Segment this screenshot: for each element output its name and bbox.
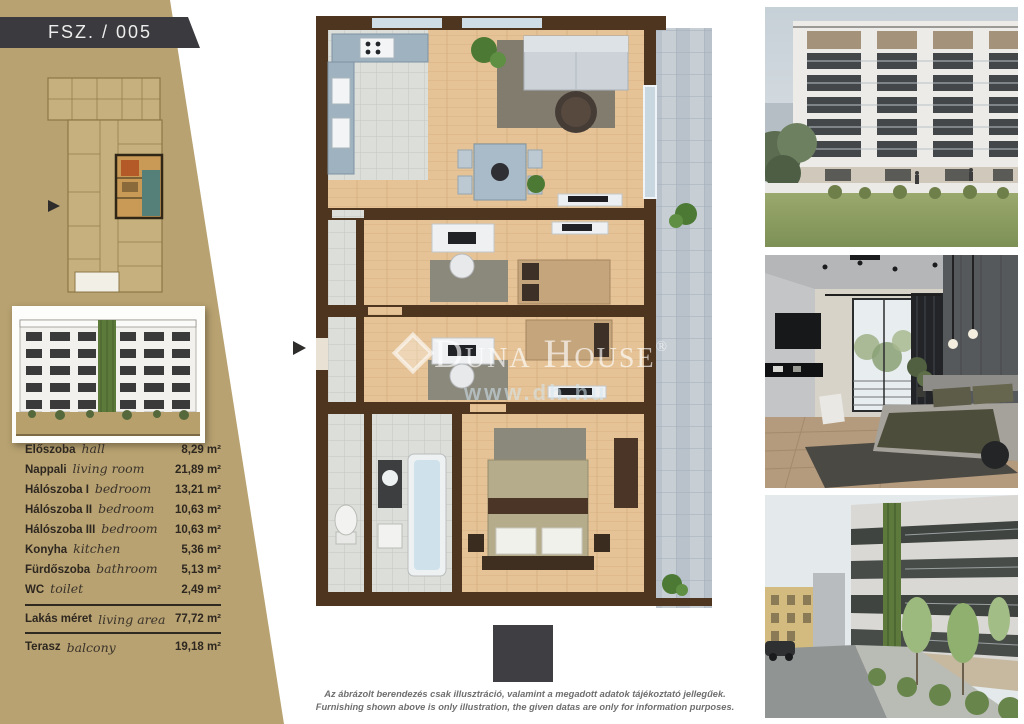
fence (765, 183, 1018, 193)
bedroom2-console (552, 222, 608, 234)
room-row: Nappaliliving room21,89 m² (25, 461, 221, 481)
watermark-url: www.dh.hu (463, 380, 608, 405)
room-area-value: 10,63 m² (175, 524, 221, 536)
room-row: Fürdőszobabathroom5,13 m² (25, 561, 221, 581)
room-name-en: kitchen (73, 541, 120, 556)
room-name-en: toilet (50, 581, 83, 596)
floor-plan-3d: Duna House® www.dh.hu (312, 8, 712, 612)
room-area-value: 77,72 m² (175, 613, 221, 625)
room-area-value: 8,29 m² (181, 444, 221, 456)
room-name-en: bedroom (101, 521, 157, 536)
room-name-en: bedroom (98, 501, 154, 516)
room-area-value: 13,21 m² (175, 484, 221, 496)
highlighted-unit (116, 155, 162, 218)
tv-console-living (558, 194, 622, 206)
room-name-hu: Hálószoba I (25, 484, 89, 496)
room-row: Előszobahall8,29 m² (25, 441, 221, 461)
entrance-door (316, 338, 328, 370)
room-area-value: 5,36 m² (181, 544, 221, 556)
bathroom-sink (378, 460, 402, 508)
building-facade (793, 21, 1018, 183)
entrance-arrow-icon (293, 341, 306, 355)
toilet (335, 505, 357, 544)
photo-street-view (765, 495, 1018, 718)
bathtub (408, 454, 446, 576)
room-row: Hálószoba Ibedroom13,21 m² (25, 481, 221, 501)
room-name-hu: Hálószoba II (25, 504, 92, 516)
bedroom2-bed (518, 260, 610, 304)
photo-bedroom-interior (765, 255, 1018, 488)
registered-mark: ® (656, 339, 669, 355)
elevation-ground (16, 412, 200, 436)
room-name-hu: Hálószoba III (25, 524, 95, 536)
room-name-hu: Előszoba (25, 444, 75, 456)
room-name-hu: Fürdőszoba (25, 564, 90, 576)
room-name-en: bathroom (96, 561, 157, 576)
room-table: Előszobahall8,29 m²Nappaliliving room21,… (25, 441, 221, 601)
room-name-hu: Terasz (25, 641, 61, 653)
room-area-value: 2,49 m² (181, 584, 221, 596)
lawn (765, 193, 1018, 247)
gray-building (813, 573, 845, 651)
totals-table: Lakás méretliving area77,72 m²Teraszbalc… (25, 604, 221, 660)
wardrobe (614, 438, 638, 508)
terrace-floor (656, 28, 712, 608)
room-name-hu: Nappali (25, 464, 67, 476)
room-row: Hálószoba IIbedroom10,63 m² (25, 501, 221, 521)
disclaimer-en: Furnishing shown above is only illustrat… (290, 701, 760, 714)
disclaimer: Az ábrázolt berendezés csak illusztráció… (290, 688, 760, 714)
room-row: Teraszbalcony19,18 m² (25, 632, 221, 660)
room-name-en: living area (98, 612, 165, 627)
building-elevation-drawing (12, 306, 205, 443)
room-name-en: bedroom (95, 481, 151, 496)
room-name-hu: Konyha (25, 544, 67, 556)
room-area-value: 19,18 m² (175, 641, 221, 653)
room-name-en: hall (81, 441, 105, 456)
room-area-value: 5,13 m² (181, 564, 221, 576)
disclaimer-hu: Az ábrázolt berendezés csak illusztráció… (290, 688, 760, 701)
room-row: WCtoilet2,49 m² (25, 581, 221, 601)
plant-dining (527, 175, 545, 193)
building-elevation-card (12, 306, 205, 443)
sofa (524, 36, 628, 90)
side-table (981, 441, 1009, 469)
level-plan-courtyard (75, 272, 119, 292)
building-level-plan (42, 74, 166, 298)
wc-floor (328, 414, 364, 592)
logo-placeholder-square (493, 625, 553, 682)
room-name-hu: Lakás méret (25, 613, 92, 625)
chair (819, 394, 845, 425)
window-top-2 (462, 18, 542, 28)
room-name-en: living room (73, 461, 145, 476)
window-top-1 (372, 18, 442, 28)
unit-pointer-arrow-icon (48, 200, 60, 212)
room-area-value: 21,89 m² (175, 464, 221, 476)
property-datasheet: FSZ. / 005 (0, 0, 1024, 724)
room-area-value: 10,63 m² (175, 504, 221, 516)
room-row: Hálószoba IIIbedroom10,63 m² (25, 521, 221, 541)
room-name-hu: WC (25, 584, 44, 596)
terrace-glass-door (644, 86, 656, 198)
watermark-brand: Duna House® (434, 331, 669, 376)
window (853, 299, 915, 411)
unit-number-label: FSZ. / 005 (48, 22, 152, 43)
room-row: Lakás méretliving area77,72 m² (25, 604, 221, 632)
tv (775, 313, 821, 349)
room-name-en: balcony (67, 640, 116, 655)
unit-number-header: FSZ. / 005 (0, 17, 200, 48)
left-wall (765, 273, 815, 437)
washing-machine (378, 524, 402, 548)
photo-building-exterior (765, 7, 1018, 247)
room-row: Konyhakitchen5,36 m² (25, 541, 221, 561)
